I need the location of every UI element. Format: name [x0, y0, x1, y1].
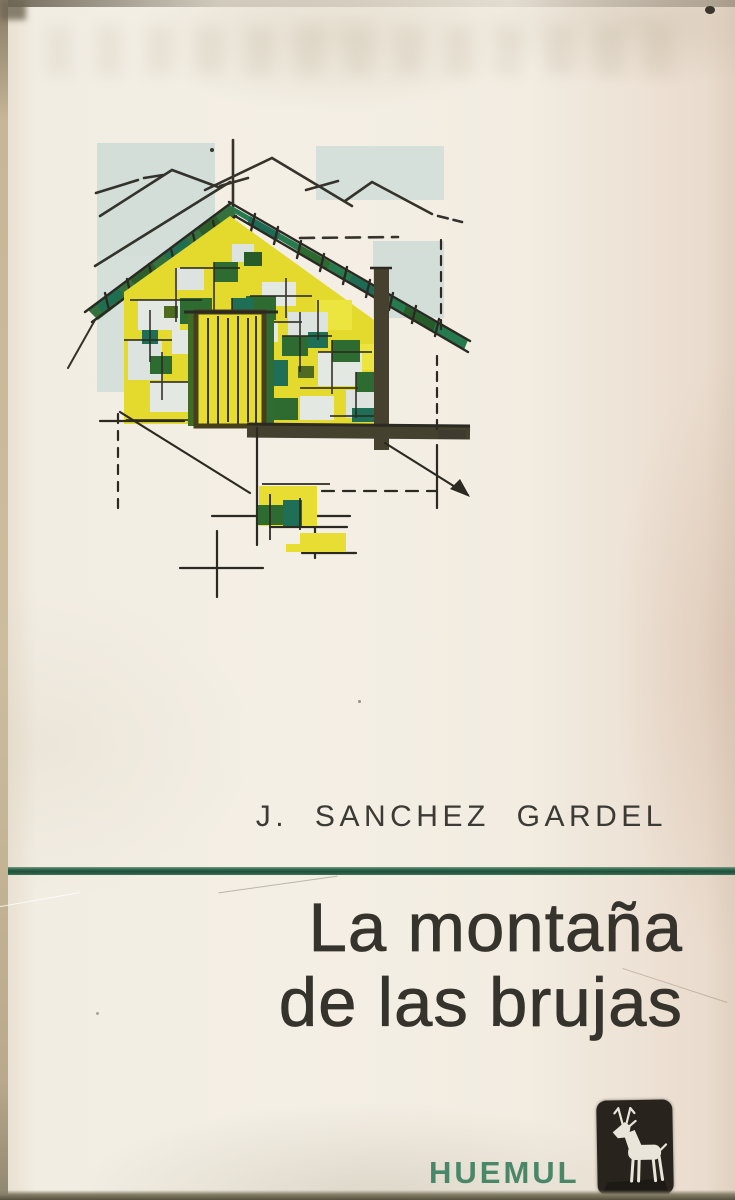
paper-speck: [210, 148, 214, 152]
scan-edge-top: [0, 0, 735, 7]
title-line-1: La montaña: [279, 890, 683, 965]
faded-print-artifact: [45, 26, 685, 76]
paper-crease: [0, 892, 79, 909]
book-cover: J. SANCHEZ GARDEL La montaña de las bruj…: [0, 0, 735, 1200]
book-title: La montaña de las brujas: [279, 890, 683, 1040]
scan-edge-left: [0, 0, 8, 1200]
paper-speck: [96, 1012, 99, 1015]
paper-speck: [652, 942, 655, 945]
paper-speck: [705, 6, 715, 14]
title-line-2: de las brujas: [279, 965, 683, 1040]
scan-corner-shadow: [0, 0, 26, 20]
publisher-logo: [596, 1099, 674, 1195]
publisher-name: HUEMUL: [429, 1155, 580, 1191]
paper-speck: [358, 700, 361, 703]
author-name: J. SANCHEZ GARDEL: [256, 800, 667, 834]
divider-rule: [0, 867, 735, 875]
cover-illustration-cabin-sketch: [40, 120, 500, 610]
huemul-deer-icon: [596, 1099, 674, 1195]
scan-edge-bottom: [0, 1190, 735, 1200]
